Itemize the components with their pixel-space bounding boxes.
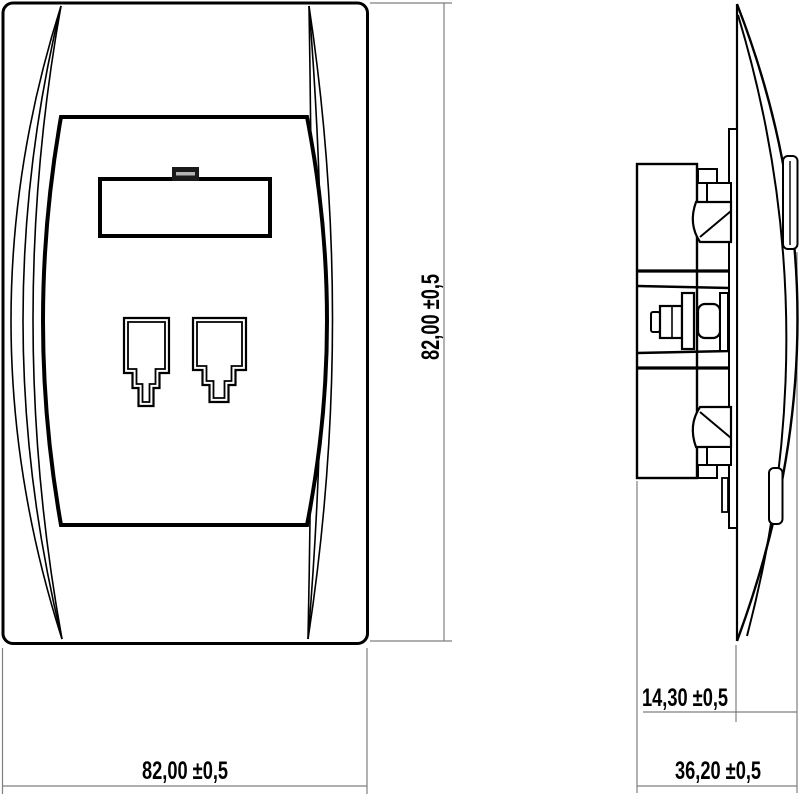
mounting-claw-top: [693, 169, 731, 242]
claw-bottom-step1: [698, 465, 717, 478]
dim-label-front-height: 82,00 ±0,5: [416, 274, 445, 360]
frame-edge-tab-upper: [783, 156, 798, 249]
dim-label-side-depth: 36,20 ±0,5: [675, 756, 761, 785]
mounting-claw-bottom: [693, 407, 731, 478]
frame-edge-tab-lower: [769, 468, 783, 524]
screw-nut: [698, 304, 720, 338]
claw-bottom-step2: [707, 447, 731, 465]
fascia-inner-curve: [738, 15, 786, 636]
claw-top-step1: [698, 169, 717, 183]
dim-label-side-protrusion: 14,30 ±0,5: [642, 683, 728, 712]
claw-top-step2: [707, 183, 731, 202]
screw-plate: [720, 293, 728, 351]
technical-drawing: 82,00 ±0,5 82,00 ±0,5 14,30 ±0,5 36,20 ±…: [0, 0, 800, 800]
dim-label-front-width: 82,00 ±0,5: [142, 756, 228, 785]
screw-tip: [651, 312, 660, 332]
label-window-tab: [172, 167, 199, 181]
side-view: [637, 4, 798, 641]
front-view: [3, 3, 368, 644]
claw-bottom-hook: [693, 407, 731, 447]
screw-flange: [682, 293, 694, 349]
tab-slit: [176, 172, 195, 176]
claw-top-hook: [693, 202, 731, 242]
drawing-canvas: 82,00 ±0,5 82,00 ±0,5 14,30 ±0,5 36,20 ±…: [0, 0, 800, 800]
screw-body: [660, 306, 682, 338]
frame-foot: [722, 478, 728, 512]
label-window: [100, 179, 270, 236]
